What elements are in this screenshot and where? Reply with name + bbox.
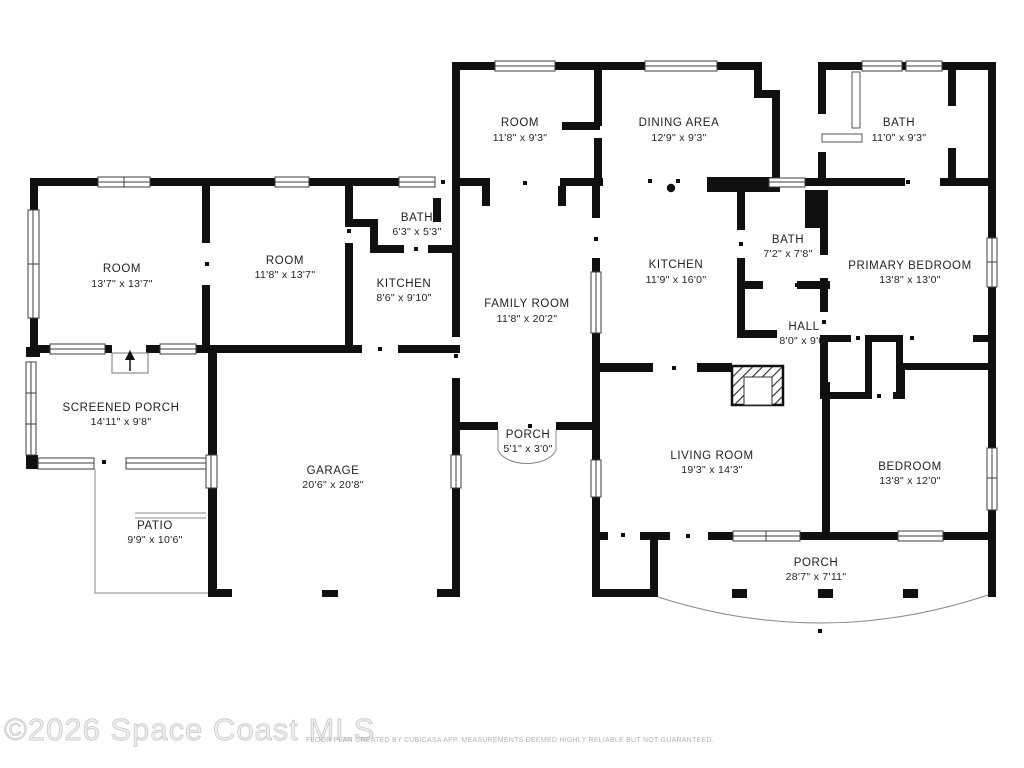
room-label-screened-porch: SCREENED PORCH (62, 402, 179, 414)
room-dims-patio: 9'9" x 10'6" (127, 534, 182, 546)
room-label-bath-small: BATH (401, 212, 433, 224)
bath-counter (822, 134, 862, 142)
room-label-kitchen-main: KITCHEN (649, 259, 704, 271)
room-dims-primary-bedroom: 13'8" x 13'0" (879, 274, 941, 286)
room-label-kitchen-small: KITCHEN (377, 278, 432, 290)
floor-plan-page: ROOM 11'8" x 9'3" DINING AREA 12'9" x 9'… (0, 0, 1024, 768)
room-dims-bedroom: 13'8" x 12'0" (879, 475, 941, 487)
room-dims-porch-front: 5'1" x 3'0" (503, 443, 552, 455)
bath-vanity (852, 72, 860, 128)
room-dims-bath-mid: 7'2" x 7'8" (763, 248, 812, 260)
entry-step (112, 350, 148, 373)
room-label-dining-area: DINING AREA (639, 117, 720, 129)
room-dims-room-mid: 11'8" x 13'7" (255, 269, 316, 281)
back-porch-curve (658, 595, 988, 623)
room-label-bath-mid: BATH (772, 234, 804, 246)
room-label-room-left: ROOM (103, 263, 141, 275)
room-label-porch-back: PORCH (794, 557, 839, 569)
room-dims-garage: 20'6" x 20'8" (302, 479, 364, 491)
room-dims-kitchen-small: 8'6" x 9'10" (376, 292, 431, 304)
support-column-dot (667, 184, 675, 192)
room-label-room-mid: ROOM (266, 255, 304, 267)
room-label-bedroom: BEDROOM (878, 461, 942, 473)
floor-plan-canvas: ROOM 11'8" x 9'3" DINING AREA 12'9" x 9'… (0, 0, 1024, 768)
fireplace-firebox (744, 377, 772, 405)
room-dims-room-left: 13'7" x 13'7" (91, 278, 153, 290)
room-dims-bath-small: 6'3" x 5'3" (392, 226, 441, 238)
room-label-garage: GARAGE (307, 465, 360, 477)
room-dims-family-room: 11'8" x 20'2" (497, 313, 558, 325)
disclaimer-text: FLOOR PLAN CREATED BY CUBICASA APP. MEAS… (298, 737, 722, 744)
room-dims-living-room: 19'3" x 14'3" (681, 464, 743, 476)
room-dims-dining-area: 12'9" x 9'3" (651, 132, 706, 144)
room-dims-screened-porch: 14'11" x 9'8" (91, 416, 152, 428)
room-label-family-room: FAMILY ROOM (484, 298, 569, 310)
room-dims-kitchen-main: 11'9" x 16'0" (646, 274, 707, 286)
room-dims-porch-back: 28'7" x 7'11" (786, 571, 847, 583)
room-label-porch-front: PORCH (506, 429, 551, 441)
room-label-living-room: LIVING ROOM (670, 450, 753, 462)
room-label-patio: PATIO (137, 520, 173, 532)
room-label-primary-bedroom: PRIMARY BEDROOM (848, 260, 972, 272)
room-dims-bath-top-right: 11'0" x 9'3" (872, 132, 927, 144)
room-label-bath-top-right: BATH (883, 117, 915, 129)
room-dims-room-top: 11'8" x 9'3" (493, 132, 548, 144)
room-label-hall: HALL (788, 321, 819, 333)
room-dims-hall: 8'0" x 9'0" (779, 335, 828, 347)
porch-pillars (732, 589, 918, 598)
room-label-room-top: ROOM (501, 117, 539, 129)
